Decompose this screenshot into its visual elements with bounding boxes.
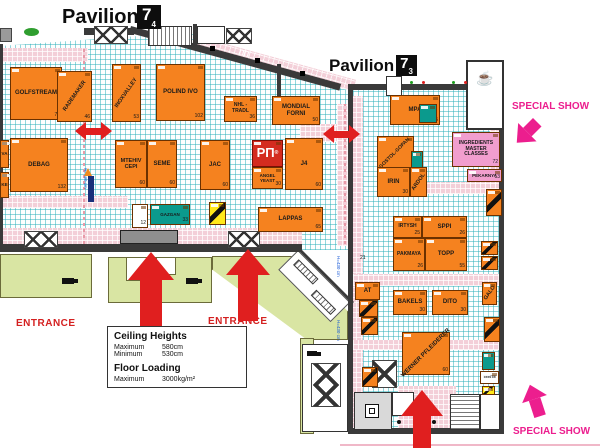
booth-label: AT xyxy=(364,288,372,295)
arrow-stem xyxy=(140,280,162,330)
booth-hatched xyxy=(482,386,495,395)
booth-number: 30 xyxy=(275,182,281,188)
booth-sppi: SPPI 26 xyxy=(422,216,467,238)
aisle-number: 21 xyxy=(360,255,366,261)
legend-label: Maximum xyxy=(114,344,162,351)
booth-pekarnya: PEKARNYA 13 xyxy=(467,169,502,182)
booth-number: 60 xyxy=(442,368,448,374)
booth-mondial-forni: MONDIAL FORNI 50 xyxy=(272,96,320,125)
booth-number: 12 xyxy=(140,221,146,227)
booth-irin: IRIN 30 xyxy=(377,167,410,197)
booth-number: 60 xyxy=(169,181,175,187)
booth-label: INOXVALLEY xyxy=(114,77,139,109)
elevator-icon xyxy=(365,404,379,418)
special-show-arrow xyxy=(518,381,553,420)
booth-number: 13 xyxy=(494,175,500,181)
booth-jac: JAC 60 xyxy=(200,140,230,190)
booth-small xyxy=(362,367,378,387)
booth-inoxvalley: INOXVALLEY 53 xyxy=(112,64,141,122)
entrance-label: ENTRANCE xyxy=(16,318,76,329)
arrow-bar xyxy=(334,131,349,138)
legend-box: Ceiling Heights Maximum 580cm Minimum 53… xyxy=(107,326,247,388)
height-note: H=430 cm xyxy=(336,256,341,277)
booth-number: 33 xyxy=(182,218,188,224)
booth-number: 30 xyxy=(402,190,408,196)
loading-dock xyxy=(120,230,178,244)
aisle-connector-arrow xyxy=(323,125,360,143)
booth-number: 30 xyxy=(419,308,425,314)
booth-number: 53 xyxy=(133,115,139,121)
booth-label: LAPPAS xyxy=(279,216,303,223)
coffee-icon: ☕ xyxy=(476,70,493,87)
status-dot xyxy=(452,81,455,84)
booth-dito: DITO 30 xyxy=(432,290,468,315)
map-boundary xyxy=(340,444,600,446)
arrow-stem xyxy=(529,397,546,418)
arrow-head xyxy=(349,125,360,143)
entrance-arrow xyxy=(128,252,174,330)
booth-bakels: BAKELS 30 xyxy=(393,290,427,315)
pavilion-74-logo: 74 xyxy=(137,5,161,29)
rp-logo: РП xyxy=(257,146,275,161)
booth-label: GOLFSTREAM xyxy=(15,90,57,97)
booth-label: GOSTOL-GOPAN xyxy=(379,138,412,171)
legend-value: 580cm xyxy=(162,344,183,351)
service-room xyxy=(302,344,348,432)
booth-label: JAC xyxy=(209,162,221,169)
wall-73-top xyxy=(352,84,470,90)
booth-label: TENTE xyxy=(483,375,496,380)
booth-number: 55 xyxy=(459,264,465,270)
entrance-door xyxy=(228,231,260,248)
hall-sub-number: 3 xyxy=(408,67,412,76)
arrow-stem xyxy=(238,275,258,321)
special-show-label: SPECIAL SHOW xyxy=(513,426,590,437)
truck-icon xyxy=(307,351,317,356)
booth-number: 65 xyxy=(315,225,321,231)
hall-number: 7 xyxy=(142,5,151,25)
booth-small xyxy=(359,300,378,317)
booth-topp: TOPP 55 xyxy=(425,238,467,271)
booth-label: NHL - TRADL xyxy=(225,103,256,115)
booth-number: 50 xyxy=(312,118,318,124)
booth-small xyxy=(419,104,437,123)
aisle xyxy=(2,196,128,208)
truck-icon xyxy=(62,278,74,284)
legend-value: 530cm xyxy=(162,351,183,358)
status-dot xyxy=(422,81,425,84)
pavilion-74-title: Pavilion xyxy=(62,6,139,29)
service-box xyxy=(0,28,12,42)
escalator-icon xyxy=(148,26,192,46)
booth-label: GALO xyxy=(482,285,496,302)
booth-small xyxy=(361,317,378,335)
planter xyxy=(24,28,39,36)
booth-label: GAZGAN xyxy=(160,212,180,217)
arrow-head xyxy=(75,122,86,140)
status-dot xyxy=(464,81,467,84)
legend-floor-title: Floor Loading xyxy=(114,363,240,374)
booth-label: DITO xyxy=(443,299,457,306)
height-note: H=430 cm xyxy=(336,320,341,341)
booth-rademaker: RADEMAKER 46 xyxy=(57,71,92,122)
booth-label: MONDIAL FORNI xyxy=(273,104,319,118)
booth-label: ARDOL xyxy=(410,172,426,192)
booth-label: TOPP xyxy=(438,251,454,258)
booth-number: 72 xyxy=(492,160,498,166)
exterior-area xyxy=(0,254,92,298)
booth-label: IRIN xyxy=(388,179,400,186)
booth-small xyxy=(484,317,500,342)
booth-hatched xyxy=(209,202,226,225)
arrow-head xyxy=(128,252,174,280)
booth-label: VA xyxy=(2,151,8,156)
booth-va: VA xyxy=(0,140,9,168)
booth-label: MTEHIV CEPI xyxy=(116,158,146,171)
booth-tente: TENTE xyxy=(480,371,499,384)
booth-number: 36 xyxy=(249,115,255,121)
arrow-bar xyxy=(86,128,101,135)
booth-ingredients-master-classes: INGREDIENTS MASTER CLASSES 72 xyxy=(452,132,500,167)
booth-label: SPPI xyxy=(438,224,452,231)
pavilion-word: Pavilion xyxy=(329,56,394,75)
booth-golfstream: GOLFSTREAM 70 xyxy=(10,67,62,120)
pavilion-73-logo: 73 xyxy=(396,55,417,76)
booth-number: 132 xyxy=(58,185,66,191)
truck-icon xyxy=(186,278,198,284)
booth-lappas: LAPPAS 65 xyxy=(258,207,323,232)
booth-nhl-tradl: NHL - TRADL 36 xyxy=(224,96,257,122)
booth-small xyxy=(481,256,498,270)
booth-ardol: ARDOL xyxy=(410,167,427,197)
booth-label: INGREDIENTS MASTER CLASSES xyxy=(455,141,497,158)
booth-irtysh: IRTYSH 25 xyxy=(393,216,422,238)
stairs-icon xyxy=(450,394,480,430)
booth-number: 60 xyxy=(222,183,228,189)
ramp-hatch xyxy=(311,363,341,407)
aisle-connector-arrow xyxy=(75,122,112,140)
booth-number: 46 xyxy=(84,115,90,121)
special-show-label: SPECIAL SHOW xyxy=(512,101,589,112)
booth-label: PAKMAYA xyxy=(397,252,421,258)
status-dot xyxy=(410,81,413,84)
exhibition-floor-plan: ☕ GOLFSTREAM 70 RADEMAKER 46 INOXVALLEY … xyxy=(0,0,600,448)
booth-label: BAKELS xyxy=(398,299,423,306)
booth-small xyxy=(486,189,502,216)
registered-mark: ® xyxy=(275,151,279,157)
arrow-head xyxy=(226,249,270,275)
service-room xyxy=(354,392,392,430)
pavilion-73-title: Pavilion xyxy=(329,56,394,76)
booth-label: POLIND IVO xyxy=(163,89,198,96)
wall-vent xyxy=(300,71,305,76)
entrance-door xyxy=(24,231,58,248)
booth-debag: DEBAG 132 xyxy=(10,138,68,192)
booth-small xyxy=(482,352,495,370)
booth-label: IRTYSH xyxy=(398,224,416,230)
flag-marker xyxy=(84,168,92,176)
booth-number: 102 xyxy=(195,114,203,120)
booth-rp-logo: РП ® xyxy=(252,140,283,167)
cafe-annex: ☕ xyxy=(466,60,504,130)
booth-label: SEME xyxy=(153,161,170,168)
booth-12: 12 xyxy=(132,204,148,228)
booth-label: J4 xyxy=(301,161,308,168)
booth-label: DEBAG xyxy=(28,162,50,169)
booth-angel-yeast: ANGEL YEAST 30 xyxy=(252,167,283,189)
hall-number: 7 xyxy=(400,55,408,72)
legend-row: Maximum 580cm xyxy=(114,344,240,351)
booth-number: 26 xyxy=(417,264,423,270)
legend-label: Minimum xyxy=(114,351,162,358)
entrance-arrow xyxy=(401,390,443,448)
booth-galo: GALO xyxy=(482,282,497,305)
booth-at: AT xyxy=(355,282,380,300)
booth-label: RADEMAKER xyxy=(62,80,88,113)
wall-vent xyxy=(210,46,215,51)
pavilion-word: Pavilion xyxy=(62,6,139,28)
hall-sub-number: 4 xyxy=(152,20,156,29)
booth-label: KE xyxy=(1,182,7,187)
booth-werner-pfleiderer: WERNER PFLEIDERER 60 xyxy=(402,332,450,375)
service-room xyxy=(480,394,500,430)
entrance-arrow xyxy=(226,249,270,321)
special-show-arrow xyxy=(508,113,547,152)
booth-ke: KE xyxy=(0,172,9,198)
arrow-stem xyxy=(413,416,431,448)
booth-number: 60 xyxy=(315,183,321,189)
booth-gazgan: GAZGAN 33 xyxy=(150,204,190,225)
booth-number: 26 xyxy=(459,231,465,237)
booth-pakmaya: PAKMAYA 26 xyxy=(393,238,425,271)
door-73-top xyxy=(386,76,402,96)
arrow-head xyxy=(323,125,334,143)
column-marker xyxy=(88,176,94,202)
booth-number: 30 xyxy=(460,308,466,314)
arrow-head xyxy=(401,390,443,416)
entrance-door xyxy=(226,28,252,44)
legend-row: Maximum 3000kg/m² xyxy=(114,376,240,383)
booth-small xyxy=(481,241,498,255)
legend-ceiling-title: Ceiling Heights xyxy=(114,331,240,342)
booth-number: 25 xyxy=(414,231,420,237)
booth-j4: J4 60 xyxy=(285,138,323,190)
booth-label: PEKARNYA xyxy=(472,173,497,178)
legend-label: Maximum xyxy=(114,376,162,383)
booth-mtehiv-cepi: MTEHIV CEPI 60 xyxy=(115,140,147,188)
wall-vent xyxy=(255,58,260,63)
legend-row: Minimum 530cm xyxy=(114,351,240,358)
vestibule xyxy=(197,26,225,44)
booth-seme: SEME 60 xyxy=(147,140,177,188)
arrow-head xyxy=(101,122,112,140)
aisle xyxy=(2,48,88,62)
booth-polindivo: POLIND IVO 102 xyxy=(156,64,205,121)
booth-number: 60 xyxy=(139,181,145,187)
legend-value: 3000kg/m² xyxy=(162,376,195,383)
